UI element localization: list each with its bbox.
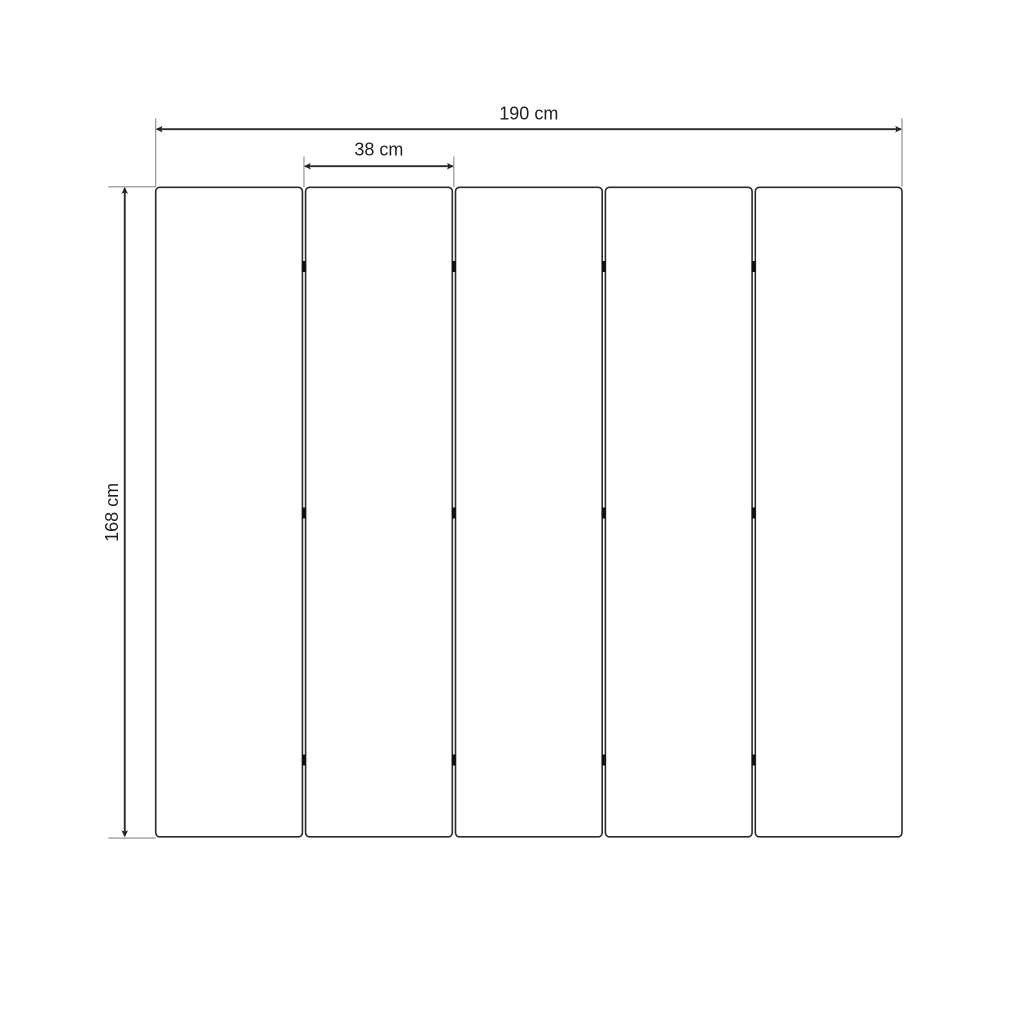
svg-text:168 cm: 168 cm (102, 483, 122, 542)
svg-text:190 cm: 190 cm (499, 104, 558, 124)
svg-text:38 cm: 38 cm (354, 140, 403, 160)
